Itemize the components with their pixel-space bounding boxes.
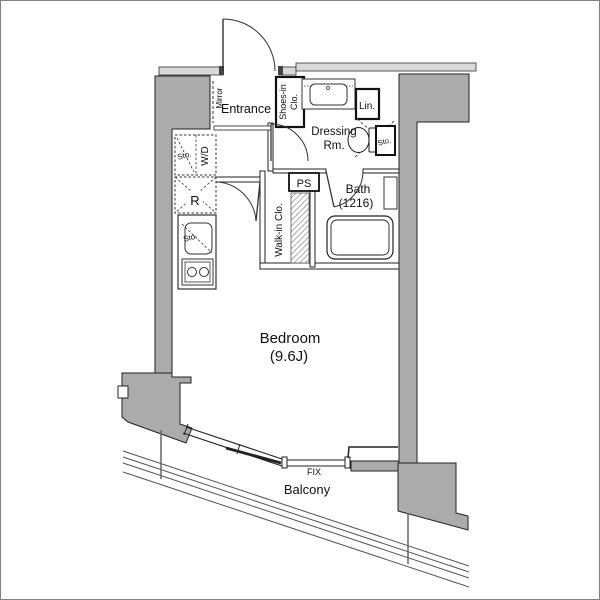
wall-hall-bedroom [215, 177, 263, 182]
vanity-basin [310, 84, 347, 105]
bedroom-door-swing [218, 182, 256, 221]
linen-label: Lin. [359, 101, 375, 112]
balcony-label: Balcony [284, 482, 331, 497]
hall-area: PS Walk-in Clo. [218, 173, 319, 263]
washer-dryer-label: W/D [200, 146, 211, 165]
floor-plan-drawing: Balcony FIX Mirror Entrance Shoes-in Clo [1, 1, 600, 600]
entrance-step [214, 126, 271, 130]
bathtub-inner [331, 220, 389, 255]
dressing-label-1: Dressing [311, 126, 356, 138]
floor-plan: Balcony FIX Mirror Entrance Shoes-in Clo [0, 0, 600, 600]
south-wall-band [351, 461, 399, 471]
entrance-door-swing [223, 19, 275, 71]
wall-walkin-left [260, 171, 265, 268]
dressing-door-swing [271, 124, 308, 161]
pillar-notch [118, 386, 128, 398]
sliding-window-rail [186, 427, 285, 460]
bedroom-area: Bedroom (9.6J) [260, 330, 321, 365]
walkin-closet-label: Walk-in Clo. [274, 203, 285, 257]
pipe-space-label: PS [297, 178, 312, 190]
window-end-cap [282, 457, 287, 468]
shoes-closet-label-2: Clo. [289, 94, 299, 110]
bedroom-door-leaf [256, 182, 260, 221]
window-end-cap [345, 457, 350, 468]
fridge-label: R [190, 193, 199, 208]
top-wall-right [296, 63, 476, 71]
walkin-hanger-area [291, 193, 309, 263]
wall-south-of-bath [260, 263, 399, 269]
bottom-left-pillar [122, 373, 192, 443]
entrance-label: Entrance [221, 102, 271, 116]
dressing-label-2: Rm. [323, 140, 344, 152]
bedroom-label: Bedroom [260, 330, 321, 347]
bath-door-leaf [326, 171, 334, 207]
shoes-closet-label-1: Shoes-in [278, 84, 288, 120]
bedroom-floor-edge [348, 447, 398, 458]
stove-burner [188, 268, 197, 277]
kitchen-area: Sto. W/D R Sto. [175, 135, 216, 289]
stove-burner [200, 268, 209, 277]
bath-counter [384, 177, 397, 209]
bath-room: Bath (1216) [326, 171, 397, 259]
fix-window-label: FIX [307, 467, 321, 477]
door-jamb-right [278, 66, 283, 75]
bedroom-size-label: (9.6J) [270, 348, 308, 365]
wall-bath-top-right [363, 169, 399, 173]
top-wall-left [159, 67, 223, 75]
right-wall [399, 74, 469, 463]
